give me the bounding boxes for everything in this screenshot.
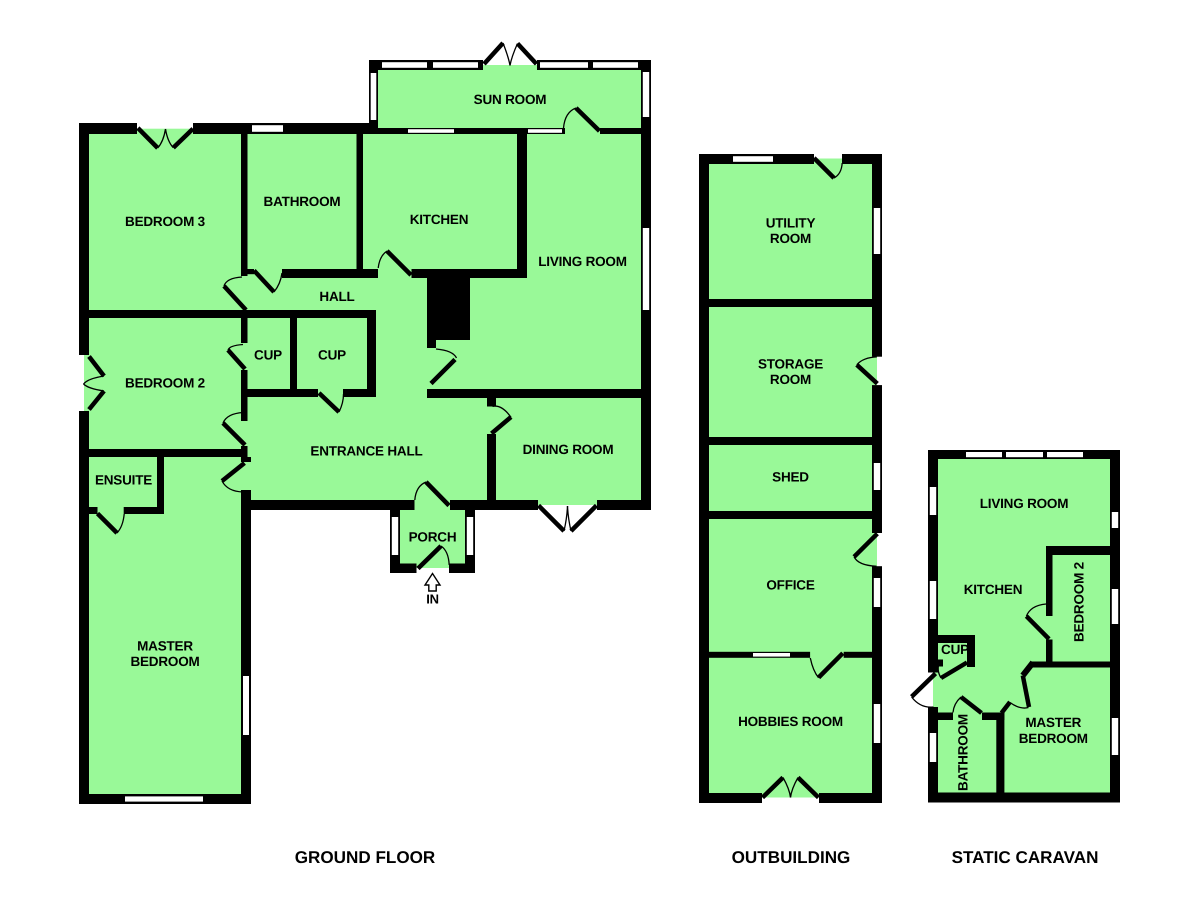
svg-text:BEDROOM: BEDROOM — [1019, 731, 1088, 746]
svg-text:CUP: CUP — [318, 348, 346, 363]
svg-text:PORCH: PORCH — [409, 530, 457, 545]
svg-text:GROUND FLOOR: GROUND FLOOR — [295, 848, 436, 867]
svg-text:STATIC CARAVAN: STATIC CARAVAN — [952, 848, 1099, 867]
svg-text:KITCHEN: KITCHEN — [964, 582, 1023, 597]
svg-text:STORAGE: STORAGE — [758, 357, 823, 372]
svg-text:CUP: CUP — [941, 642, 969, 657]
svg-text:ENSUITE: ENSUITE — [95, 473, 152, 488]
svg-text:BEDROOM 2: BEDROOM 2 — [1072, 562, 1087, 642]
svg-text:ENTRANCE HALL: ENTRANCE HALL — [310, 444, 422, 459]
svg-text:ROOM: ROOM — [770, 231, 811, 246]
svg-text:KITCHEN: KITCHEN — [410, 212, 469, 227]
svg-text:MASTER: MASTER — [1025, 715, 1081, 730]
svg-text:BEDROOM: BEDROOM — [130, 654, 199, 669]
svg-text:ROOM: ROOM — [770, 372, 811, 387]
svg-text:CUP: CUP — [254, 348, 282, 363]
svg-text:LIVING ROOM: LIVING ROOM — [538, 254, 627, 269]
svg-text:BATHROOM: BATHROOM — [955, 714, 970, 791]
svg-text:OFFICE: OFFICE — [766, 578, 814, 593]
svg-text:BATHROOM: BATHROOM — [264, 194, 341, 209]
svg-text:BEDROOM 2: BEDROOM 2 — [125, 376, 205, 391]
svg-text:HOBBIES ROOM: HOBBIES ROOM — [738, 714, 843, 729]
svg-text:BEDROOM 3: BEDROOM 3 — [125, 214, 206, 229]
svg-text:SHED: SHED — [772, 470, 809, 485]
svg-text:DINING ROOM: DINING ROOM — [523, 442, 614, 457]
svg-text:IN: IN — [426, 592, 439, 607]
svg-text:HALL: HALL — [319, 289, 354, 304]
svg-text:MASTER: MASTER — [137, 639, 193, 654]
svg-text:SUN ROOM: SUN ROOM — [474, 92, 547, 107]
svg-text:OUTBUILDING: OUTBUILDING — [732, 848, 851, 867]
svg-text:UTILITY: UTILITY — [766, 216, 816, 231]
svg-text:LIVING ROOM: LIVING ROOM — [980, 496, 1069, 511]
